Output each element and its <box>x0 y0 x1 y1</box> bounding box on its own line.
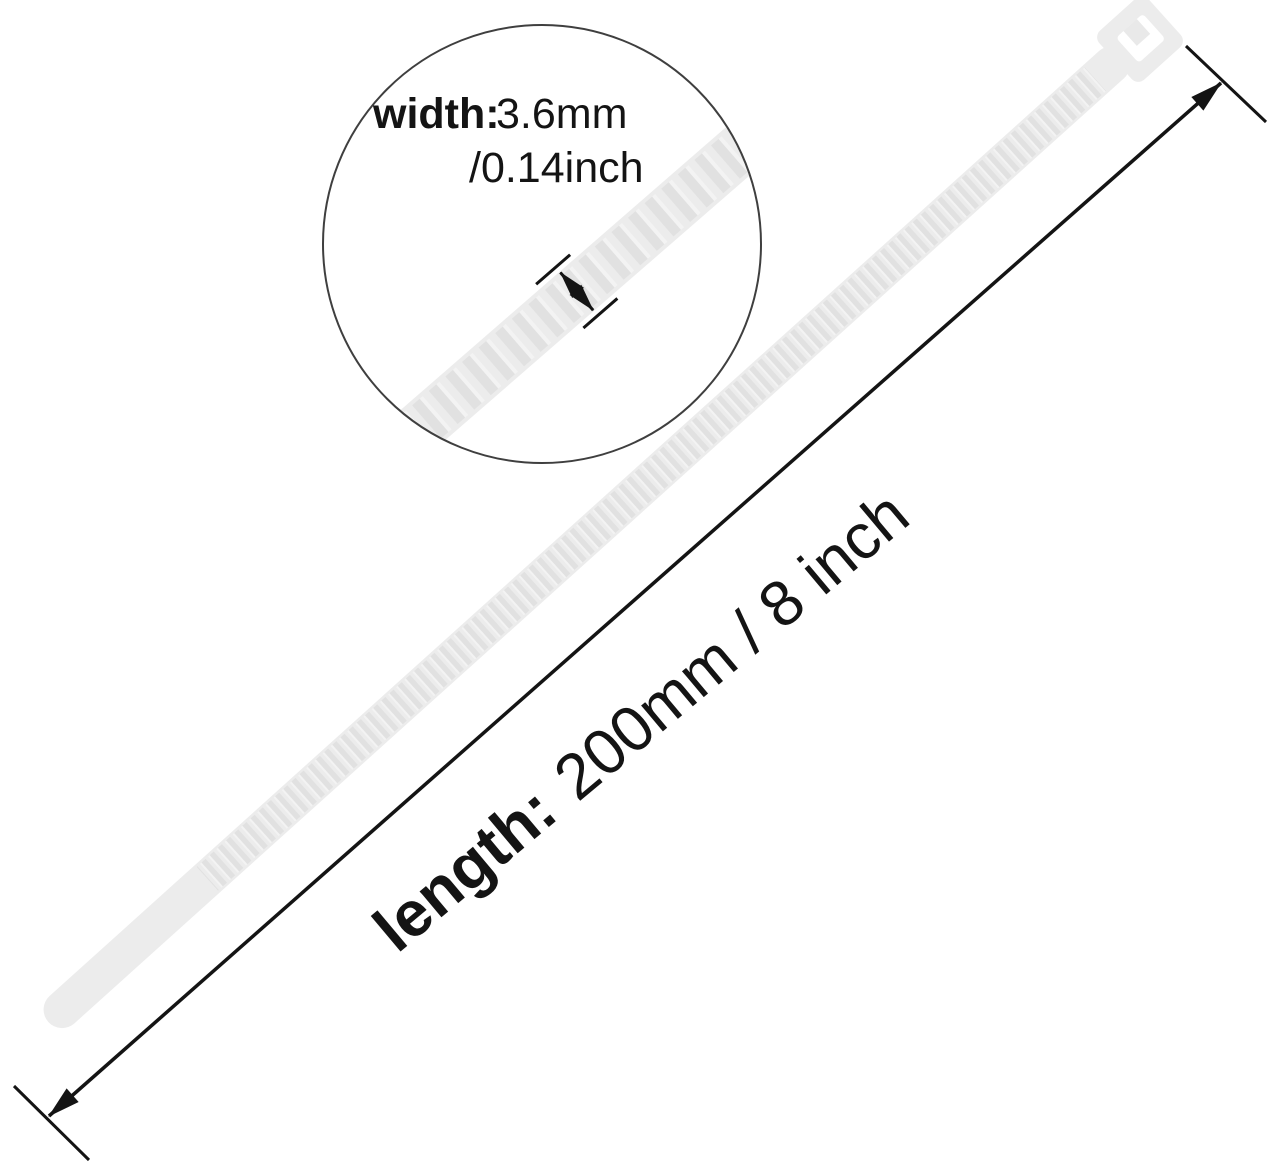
width-value-mm: 3.6mm <box>496 90 627 138</box>
width-label: width: <box>372 90 500 138</box>
length-label: length: <box>360 773 570 965</box>
length-extension-tick-top <box>1186 46 1266 122</box>
cable-tie-dimension-diagram: width: 3.6mm /0.14inch length: 200mm / 8… <box>0 0 1270 1165</box>
length-extension-tick-bottom <box>14 1086 89 1160</box>
tie-strap-ribs <box>197 67 1106 890</box>
length-text: length: 200mm / 8 inch <box>360 477 922 965</box>
width-value-inch: /0.14inch <box>469 144 644 192</box>
product-diagram-canvas: width: 3.6mm /0.14inch length: 200mm / 8… <box>0 0 1270 1165</box>
